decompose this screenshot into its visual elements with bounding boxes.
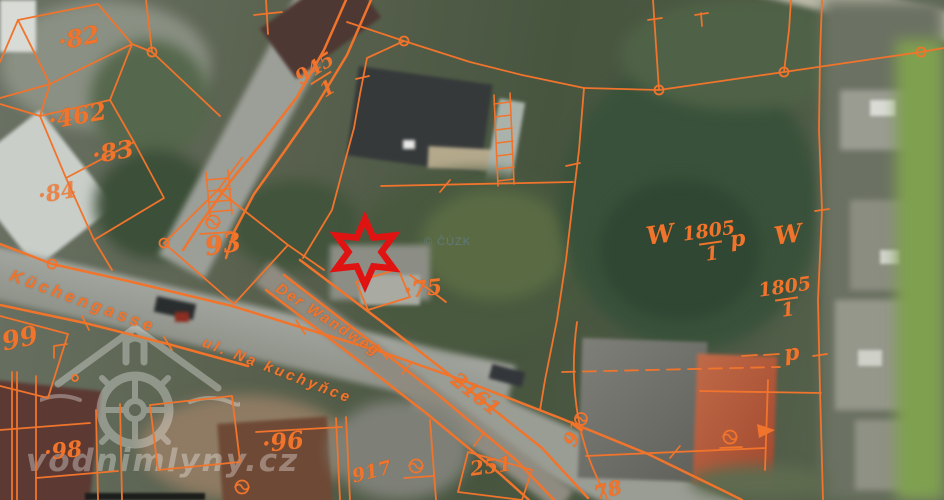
location-marker-star[interactable]: [322, 210, 408, 294]
fraction-numerator: 1805: [757, 275, 812, 301]
parcel-label-251: 251: [469, 453, 513, 479]
landuse-symbol-p-2: p: [783, 341, 801, 365]
landuse-symbol-W-1: W: [644, 220, 675, 249]
landuse-symbol-p-1: p: [729, 227, 747, 251]
fraction-denominator: 1: [775, 296, 801, 321]
parcel-label-75: ·75: [403, 276, 443, 302]
parcel-label-1805-1-b: 1805 1: [757, 275, 815, 324]
parcel-label-78: 78: [592, 477, 624, 500]
parcel-label-99: 99: [0, 323, 40, 356]
dashed-boundary-lines: [562, 367, 780, 372]
parcel-label-84: ·84: [36, 179, 78, 207]
parcel-label-83: ·83: [90, 137, 135, 168]
parcel-label-93: 93: [203, 230, 242, 261]
fraction-denominator: 1: [699, 240, 725, 265]
cadastral-map-viewport[interactable]: vodnimlyny.cz © ČÚZK: [0, 0, 944, 500]
parcel-label-96: ·96: [261, 428, 305, 456]
landuse-symbol-W-2: W: [772, 220, 803, 249]
parcel-label-98: ·98: [43, 438, 83, 464]
cadastre-overlay: [0, 0, 944, 500]
six-pointed-star-icon: [336, 219, 393, 285]
boundary-node-circles: [48, 37, 926, 382]
cadastre-parcel-lines: [0, 0, 944, 500]
